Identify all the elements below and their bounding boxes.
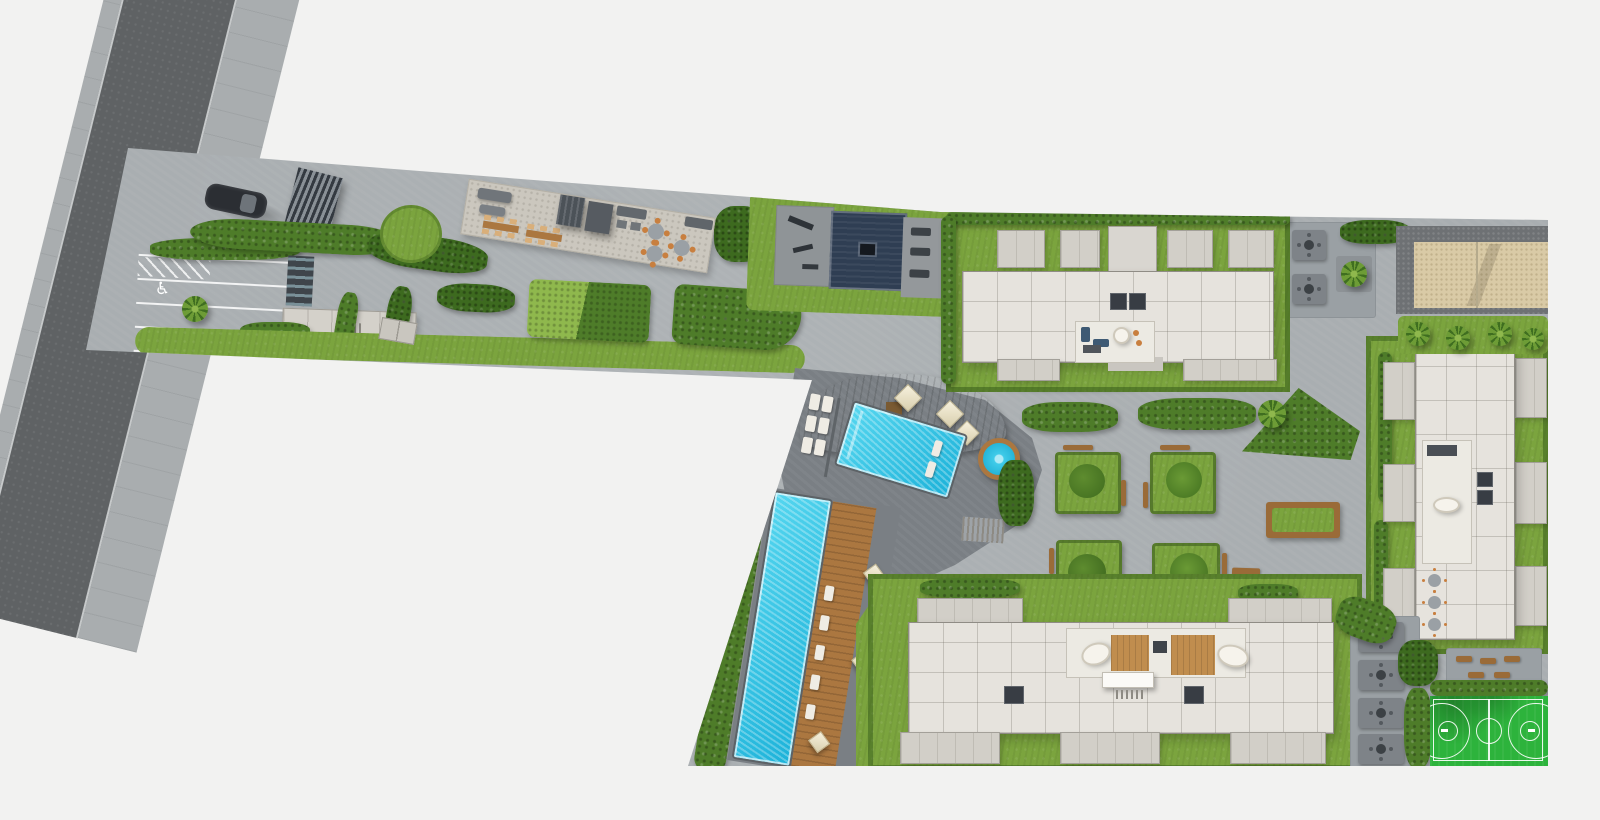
bench-dark (911, 227, 931, 236)
lobby-chair-round (1428, 574, 1441, 587)
grass-island (380, 205, 442, 263)
sun-lounger (805, 415, 818, 432)
courtyard-planter (1055, 452, 1121, 514)
kitchen-unit (630, 222, 641, 231)
palm-tree (1522, 328, 1544, 350)
table-chairs (1376, 670, 1386, 680)
lobby-chair (1133, 330, 1139, 336)
palm-tree (1488, 322, 1512, 346)
hedge-court-north (1430, 680, 1548, 696)
lobby-counter (1427, 445, 1457, 456)
in-pool-lounger (924, 461, 936, 479)
picnic-bench (1504, 656, 1520, 662)
building-b (1382, 342, 1548, 648)
planter-bench (1121, 480, 1126, 506)
palm-planter (1336, 256, 1372, 292)
planter-bench (1063, 445, 1093, 450)
entrance-canopy (1102, 672, 1154, 688)
courtyard-planter (1150, 452, 1216, 514)
dining-cluster (1292, 230, 1326, 260)
hedge-block-mixed (527, 279, 652, 343)
site-plan-canvas: ♿ (0, 0, 1600, 820)
planter-bench (1049, 548, 1054, 574)
building-c-wing-south (1230, 732, 1326, 764)
building-a-lobby (1075, 321, 1155, 363)
palm-tree (1446, 326, 1470, 350)
gym-equipment (802, 264, 818, 270)
building-a-wing-south (997, 359, 1060, 381)
amenity-table (1153, 641, 1167, 653)
sand-volleyball-court (1414, 242, 1548, 308)
building-a-wing (1167, 230, 1213, 268)
entrance-steps (1116, 690, 1144, 699)
basketball-court (1430, 696, 1548, 766)
volleyball-net (1476, 242, 1478, 308)
elevator-core (1004, 686, 1024, 704)
table-chairs (1376, 708, 1386, 718)
sun-lounger (808, 393, 821, 410)
play-equipment (860, 244, 875, 256)
picnic-bench (1468, 672, 1484, 678)
picnic-bench (1480, 658, 1496, 664)
elevator-core (1477, 472, 1493, 487)
palm-tree (1406, 322, 1430, 346)
building-c-wing-south (1060, 732, 1160, 764)
dining-cluster (1358, 734, 1404, 764)
dining-cluster (1358, 698, 1404, 728)
dining-table-set (525, 224, 563, 247)
amenity-daybed (1078, 639, 1114, 670)
terrace-sofa (479, 204, 506, 217)
sun-lounger (814, 439, 827, 456)
fitness-mat (829, 211, 908, 292)
amenity-daybed (1215, 641, 1252, 671)
hedge-band (1022, 402, 1118, 432)
picnic-bench (1494, 672, 1510, 678)
lobby-chair-round (1428, 596, 1441, 609)
picnic-bench (1456, 656, 1472, 662)
gym-equipment (793, 244, 814, 253)
building-b-wing (1515, 462, 1547, 524)
building-a-wing (997, 230, 1045, 268)
table-chairs (1376, 744, 1386, 754)
pergola-roof (584, 201, 613, 235)
elevator-core (1110, 293, 1127, 310)
court-center-circle (1476, 718, 1502, 744)
dining-cluster (1292, 274, 1326, 304)
lobby-chair-round (1428, 618, 1441, 631)
table-chairs (1304, 240, 1314, 250)
round-table (645, 245, 663, 263)
lobby-daybed (1433, 497, 1460, 513)
accessible-parking-symbol: ♿ (154, 281, 170, 299)
planter-tree (1069, 464, 1105, 498)
parking-hatch (138, 257, 211, 280)
building-a-wing-south (1183, 359, 1277, 381)
building-a-wing (1060, 230, 1100, 268)
bbq-counter (684, 216, 713, 230)
elevator-core (1129, 293, 1146, 310)
planter-plants (1272, 508, 1334, 532)
building-a (962, 226, 1274, 382)
building-b-wing (1515, 358, 1547, 418)
garage-ramp (286, 255, 315, 306)
round-table (647, 223, 665, 241)
sun-lounger (817, 417, 830, 434)
hedge-band (1138, 398, 1256, 430)
palm-tree (182, 296, 208, 322)
round-table (673, 239, 691, 257)
car-windshield (239, 193, 257, 214)
building-a-wing (1228, 230, 1274, 268)
sun-lounger (821, 395, 834, 412)
hedge-court-west (1404, 688, 1432, 768)
basketball-hoop (1528, 729, 1535, 732)
building-a-hedge-west (941, 216, 956, 384)
volleyball-net-shadow (1467, 244, 1502, 306)
amenity-wood-pad (1111, 635, 1149, 671)
building-b-wing (1383, 362, 1415, 420)
terrace-sofa (477, 187, 512, 203)
planter-bench-rect (1266, 502, 1340, 538)
lobby-chair (1136, 340, 1142, 346)
building-b-wing (1383, 464, 1415, 522)
building-a-hedge-top (946, 212, 1290, 225)
bench-dark (910, 247, 930, 256)
basketball-hoop (1441, 729, 1448, 732)
building-c-wing-south (900, 732, 1000, 764)
dining-table-set (482, 215, 520, 238)
building-c-amenity (1066, 628, 1246, 678)
courtyard-steps (961, 517, 1005, 544)
pergola-roof (556, 194, 585, 228)
amenity-wood-pad (1171, 635, 1215, 675)
bench-dark (909, 269, 929, 278)
lobby-sofa (1081, 327, 1090, 342)
elevator-core (1477, 490, 1493, 505)
grill-counter (616, 205, 647, 220)
sun-lounger (801, 437, 814, 454)
palm-tree (1258, 400, 1286, 428)
palm-lawn (1398, 316, 1548, 354)
building-b-wing (1515, 566, 1547, 626)
kitchen-unit (616, 220, 627, 229)
planter-tree (1166, 462, 1202, 498)
elevator-core (1184, 686, 1204, 704)
building-b-lobby (1422, 440, 1472, 564)
lobby-counter (1083, 345, 1101, 353)
parking-line (136, 302, 296, 312)
palm-tree (1341, 261, 1367, 287)
gym-equipment (788, 215, 814, 230)
building-a-center-shaft (1108, 226, 1157, 272)
hedge-blob (998, 460, 1034, 526)
fitness-pad-west (774, 205, 835, 287)
lobby-daybed (1113, 327, 1130, 344)
table-chairs (1304, 284, 1314, 294)
planter-bench (1143, 482, 1148, 508)
building-c (884, 584, 1346, 768)
hedge-blob (1398, 640, 1438, 686)
planter-bench (1160, 445, 1190, 450)
in-pool-lounger (931, 440, 943, 458)
